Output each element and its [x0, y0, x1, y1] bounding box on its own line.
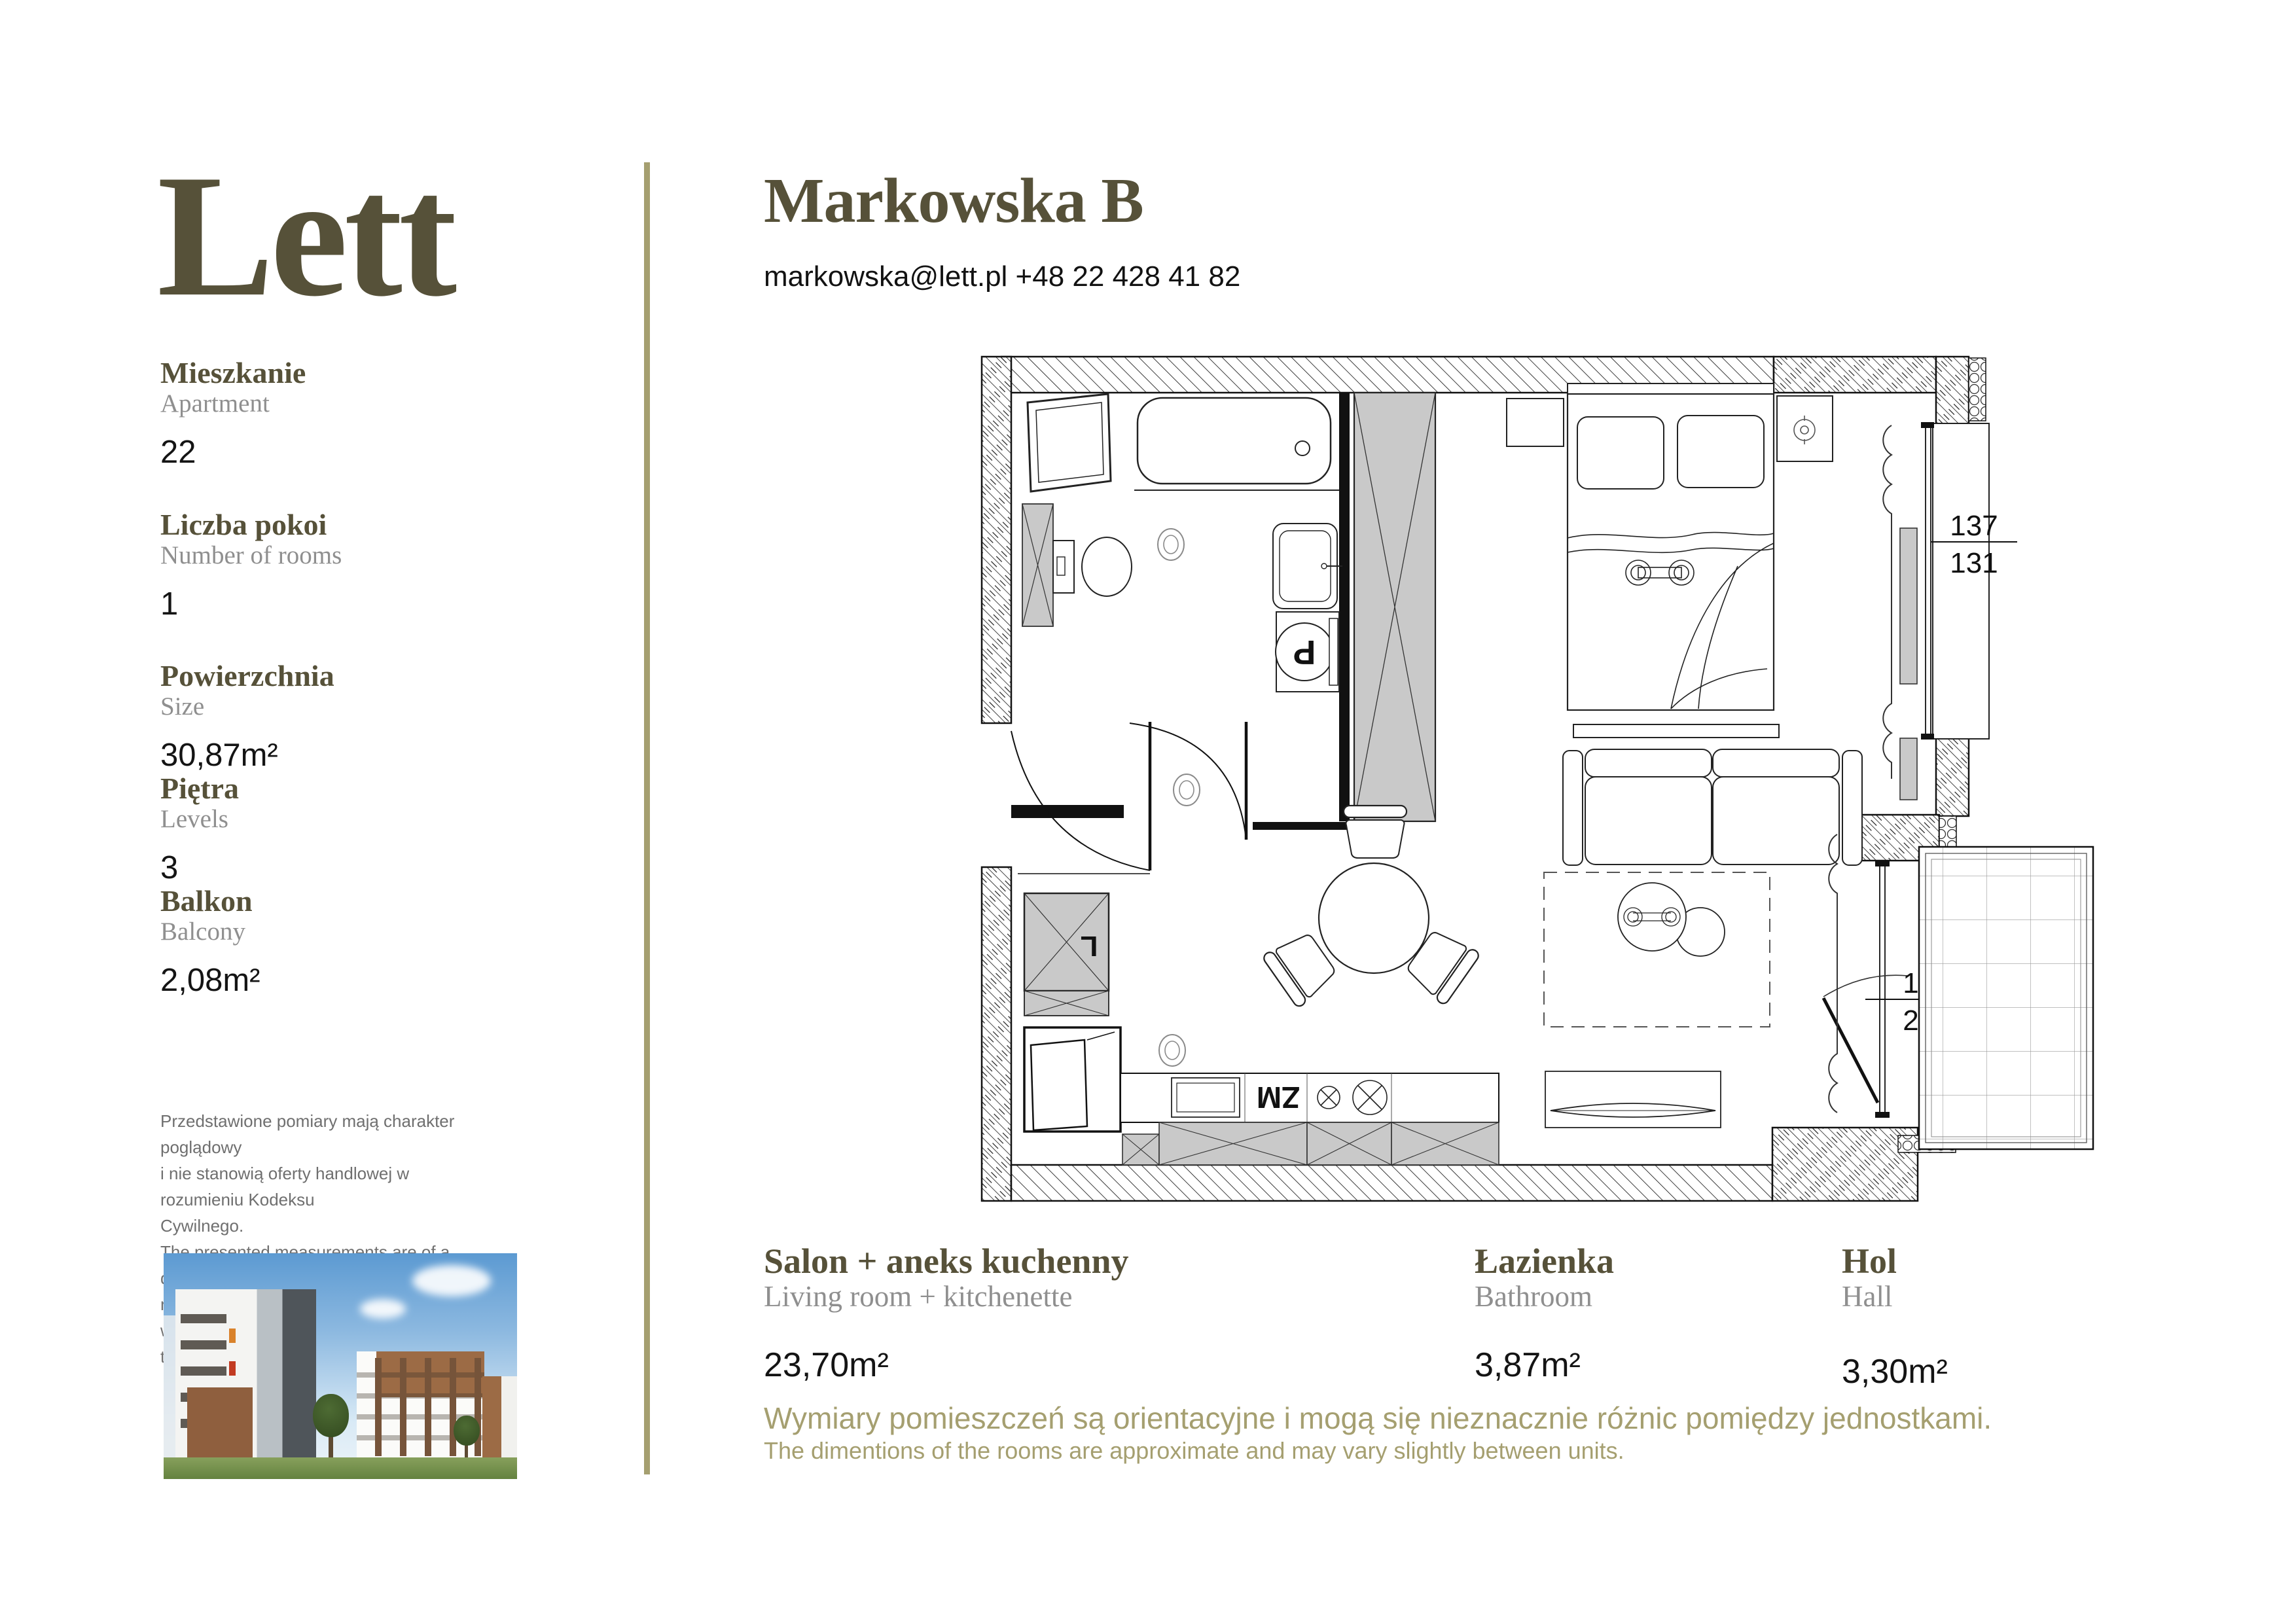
svg-text:131: 131: [1950, 547, 1998, 579]
dishwasher-label: ZM: [1257, 1080, 1300, 1115]
ceiling-light: [1158, 529, 1184, 560]
balcony: [1919, 847, 2093, 1149]
pillow: [1677, 416, 1764, 488]
spec-label-pl: Piętra: [160, 772, 579, 805]
washer-label: P: [1293, 633, 1316, 671]
entry-door: [1011, 722, 1150, 874]
toilet: [1053, 537, 1132, 596]
sink: [1273, 524, 1342, 609]
room-area: 3,30m²: [1842, 1353, 2136, 1390]
disclaimer-line: Przedstawione pomiary mają charakter pog…: [160, 1108, 488, 1160]
room-bathroom: Łazienka Bathroom 3,87m²: [1475, 1242, 1769, 1383]
fridge: L: [1024, 893, 1109, 991]
spec-label-pl: Balkon: [160, 885, 579, 918]
footnote-pl: Wymiary pomieszczeń są orientacyjne i mo…: [764, 1400, 1992, 1436]
room-name-en: Living room + kitchenette: [764, 1280, 1353, 1313]
room-area: 3,87m²: [1475, 1347, 1769, 1383]
room-name-en: Bathroom: [1475, 1280, 1769, 1313]
fridge-label: L: [1081, 930, 1098, 962]
nightstand: [1777, 396, 1833, 461]
room-name-pl: Hol: [1842, 1242, 2136, 1280]
hall-cabinets: L: [1024, 893, 1121, 1132]
coffee-tables: [1618, 883, 1725, 956]
ceiling-light: [1159, 1035, 1185, 1066]
spec-label-pl: Liczba pokoi: [160, 508, 579, 541]
wardrobe: [1354, 393, 1435, 821]
brand-logo: Lett: [157, 147, 453, 324]
nightstand: [1507, 399, 1564, 446]
spec-apartment: Mieszkanie Apartment 22: [160, 357, 579, 469]
spec-label-en: Apartment: [160, 389, 579, 418]
spec-value: 1: [160, 587, 579, 621]
kitchen-base-cabinets: [1122, 1122, 1499, 1165]
disclaimer-line: i nie stanowią oferty handlowej w rozumi…: [160, 1160, 488, 1213]
room-name-pl: Salon + aneks kuchenny: [764, 1242, 1353, 1280]
photo-accent: [229, 1361, 236, 1376]
spec-value: 30,87m²: [160, 738, 579, 772]
living-room: [1544, 724, 1862, 1128]
dining-set: [1262, 806, 1480, 1008]
room-name-pl: Łazienka: [1475, 1242, 1769, 1280]
spec-label-en: Levels: [160, 805, 579, 834]
photo-grass: [164, 1457, 517, 1479]
spec-label-en: Size: [160, 692, 579, 721]
console-shelf: [1573, 724, 1779, 738]
bathroom: P: [1022, 394, 1342, 692]
spec-value: 2,08m²: [160, 963, 579, 997]
disclaimer-line: Cywilnego.: [160, 1213, 488, 1239]
dining-table: [1319, 863, 1429, 973]
spec-levels: Piętra Levels 3: [160, 772, 579, 885]
radiator: [1900, 738, 1917, 800]
curtain: [1883, 425, 1892, 779]
headboard: [1568, 383, 1774, 394]
room-area: 23,70m²: [764, 1347, 1353, 1383]
sofa: [1563, 749, 1862, 865]
spec-balcony: Balkon Balcony 2,08m²: [160, 885, 579, 997]
room-living: Salon + aneks kuchenny Living room + kit…: [764, 1242, 1353, 1383]
vertical-divider: [644, 162, 650, 1474]
spec-label-en: Number of rooms: [160, 541, 579, 570]
spec-value: 22: [160, 435, 579, 469]
radiator: [1900, 528, 1917, 684]
page-title: Markowska B: [764, 167, 1143, 235]
ceiling-light: [1174, 774, 1200, 806]
spec-value: 3: [160, 851, 579, 885]
photo-tree: [313, 1394, 349, 1437]
tv-cabinet: [1545, 1071, 1721, 1128]
photo-cloud: [360, 1299, 406, 1319]
photo-building-small: [482, 1376, 517, 1461]
bathroom-cabinet: [1028, 394, 1111, 491]
room-name-en: Hall: [1842, 1280, 2136, 1313]
photo-cloud: [412, 1265, 491, 1296]
floor-plan: P L: [978, 350, 2130, 1207]
photo-building-left: [175, 1289, 316, 1463]
curtain: [1829, 834, 1837, 1113]
photo-tree: [454, 1416, 480, 1446]
svg-text:137: 137: [1950, 510, 1998, 542]
spec-label-pl: Powierzchnia: [160, 660, 579, 692]
spec-rooms: Liczba pokoi Number of rooms 1: [160, 508, 579, 621]
pillow: [1577, 417, 1664, 489]
contact-info: markowska@lett.pl +48 22 428 41 82: [764, 260, 1240, 293]
spec-label-en: Balcony: [160, 918, 579, 946]
spec-size: Powierzchnia Size 30,87m²: [160, 660, 579, 772]
bedroom: [1507, 383, 1833, 710]
building-photo: [164, 1253, 517, 1479]
footnote-en: The dimentions of the rooms are approxim…: [764, 1437, 1624, 1465]
shaft: [1022, 504, 1053, 626]
bathtub-faucet: [1295, 441, 1310, 455]
washing-machine: P: [1276, 612, 1339, 692]
kitchenette: ZM: [1121, 1035, 1499, 1165]
spec-label-pl: Mieszkanie: [160, 357, 579, 389]
room-hall: Hol Hall 3,30m²: [1842, 1242, 2136, 1390]
bedroom-window: 137 131: [1883, 422, 2017, 779]
photo-accent: [229, 1329, 236, 1343]
cabinet-open-door: [1024, 1027, 1121, 1132]
page: { "brand": { "logo": "Lett" }, "header":…: [0, 0, 2296, 1623]
